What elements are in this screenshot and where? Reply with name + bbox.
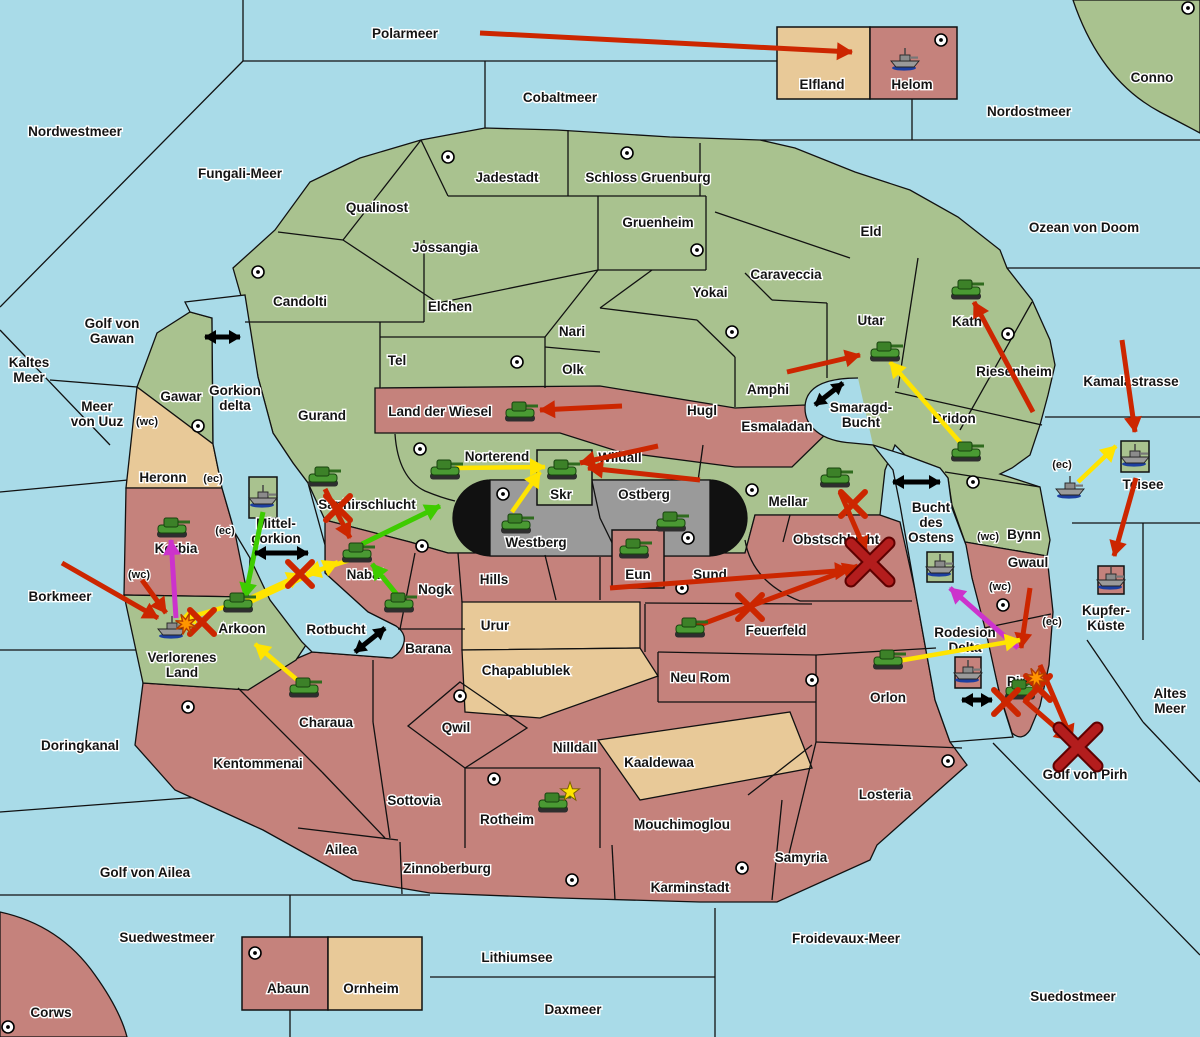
- label-kaaldewaa: Kaaldewaa: [624, 755, 694, 770]
- svg-text:Esmaladan: Esmaladan: [741, 419, 812, 434]
- svg-text:Suedostmeer: Suedostmeer: [1030, 989, 1116, 1004]
- label-samyria: Samyria: [775, 850, 828, 865]
- svg-text:Skr: Skr: [550, 487, 573, 502]
- label-urur: Urur: [481, 618, 510, 633]
- game-map-stage: NordwestmeerPolarmeerCobaltmeerFungali-M…: [0, 0, 1200, 1037]
- label-arkoon: Arkoon: [218, 621, 265, 636]
- label-heronn: Heronn: [139, 470, 186, 485]
- label-suedwestmeer: Suedwestmeer: [119, 930, 215, 945]
- label-hills: Hills: [480, 572, 509, 587]
- label-kentommenai: Kentommenai: [213, 756, 302, 771]
- label-tel: Tel: [388, 353, 407, 368]
- svg-text:Daxmeer: Daxmeer: [544, 1002, 602, 1017]
- label-kaltes-meer: KaltesMeer: [9, 355, 50, 385]
- svg-text:Qualinost: Qualinost: [346, 200, 409, 215]
- svg-text:Norterend: Norterend: [465, 449, 530, 464]
- svg-text:Helom: Helom: [891, 77, 932, 92]
- label-abaun: Abaun: [267, 981, 309, 996]
- svg-text:Arkoon: Arkoon: [218, 621, 265, 636]
- svg-text:Kaaldewaa: Kaaldewaa: [624, 755, 694, 770]
- supply-center-dot: [497, 488, 509, 500]
- region-ornheim[interactable]: [328, 937, 422, 1010]
- label-schloss-gruenburg: Schloss Gruenburg: [585, 170, 710, 185]
- svg-text:(ec): (ec): [1042, 616, 1062, 628]
- svg-text:Losteria: Losteria: [859, 787, 912, 802]
- label-losteria: Losteria: [859, 787, 912, 802]
- svg-text:Caraveccia: Caraveccia: [750, 267, 822, 282]
- label-ostberg: Ostberg: [618, 487, 670, 502]
- supply-center-dot: [192, 420, 204, 432]
- coast-ec-gwaul: (ec): [1042, 616, 1062, 628]
- coast-wc-gwaul: (wc): [989, 581, 1011, 593]
- svg-text:Polarmeer: Polarmeer: [372, 26, 439, 41]
- label-charaua: Charaua: [299, 715, 354, 730]
- svg-text:Utar: Utar: [857, 313, 885, 328]
- label-nogk: Nogk: [418, 582, 452, 597]
- label-golf-von-gawan: Golf vonGawan: [85, 316, 140, 346]
- svg-text:Sottovia: Sottovia: [387, 793, 441, 808]
- label-cobaltmeer: Cobaltmeer: [523, 90, 598, 105]
- svg-text:Samyria: Samyria: [775, 850, 828, 865]
- svg-text:(wc): (wc): [977, 531, 999, 543]
- supply-center-dot: [942, 755, 954, 767]
- svg-text:Mouchimoglou: Mouchimoglou: [634, 817, 730, 832]
- label-elfland: Elfland: [799, 77, 844, 92]
- label-mouchimoglou: Mouchimoglou: [634, 817, 730, 832]
- label-norterend: Norterend: [465, 449, 530, 464]
- label-gurand: Gurand: [298, 408, 346, 423]
- label-doringkanal: Doringkanal: [41, 738, 119, 753]
- coast-ec-heronn: (ec): [203, 473, 223, 485]
- svg-text:Golf vonGawan: Golf vonGawan: [85, 316, 140, 346]
- label-bynn: Bynn: [1007, 527, 1041, 542]
- supply-center-dot: [691, 244, 703, 256]
- label-neu-rom: Neu Rom: [670, 670, 729, 685]
- svg-text:Gurand: Gurand: [298, 408, 346, 423]
- svg-text:Qwil: Qwil: [442, 720, 471, 735]
- label-olk: Olk: [562, 362, 584, 377]
- svg-text:Nordostmeer: Nordostmeer: [987, 104, 1072, 119]
- label-chapablublek: Chapablublek: [482, 663, 571, 678]
- label-borkmeer: Borkmeer: [28, 589, 92, 604]
- svg-text:Schloss Gruenburg: Schloss Gruenburg: [585, 170, 710, 185]
- svg-text:Candolti: Candolti: [273, 294, 327, 309]
- svg-text:Westberg: Westberg: [505, 535, 566, 550]
- svg-text:Jossangia: Jossangia: [412, 240, 479, 255]
- label-daxmeer: Daxmeer: [544, 1002, 602, 1017]
- svg-text:Suedwestmeer: Suedwestmeer: [119, 930, 215, 945]
- label-land-der-wiesel: Land der Wiesel: [388, 404, 491, 419]
- svg-text:Nilldall: Nilldall: [553, 740, 597, 755]
- label-gwaul: Gwaul: [1008, 555, 1049, 570]
- svg-text:Lithiumsee: Lithiumsee: [481, 950, 553, 965]
- svg-text:Karminstadt: Karminstadt: [651, 880, 730, 895]
- svg-text:(ec): (ec): [203, 473, 223, 485]
- svg-text:KaltesMeer: KaltesMeer: [9, 355, 50, 385]
- svg-text:Barana: Barana: [405, 641, 451, 656]
- svg-text:Olk: Olk: [562, 362, 584, 377]
- svg-text:Ornheim: Ornheim: [343, 981, 399, 996]
- label-ornheim: Ornheim: [343, 981, 399, 996]
- svg-text:Golf von Ailea: Golf von Ailea: [100, 865, 191, 880]
- label-nilldall: Nilldall: [553, 740, 597, 755]
- supply-center-dot: [736, 862, 748, 874]
- label-qwil: Qwil: [442, 720, 471, 735]
- coast-wc-bynn: (wc): [977, 531, 999, 543]
- label-altes-meer: AltesMeer: [1153, 686, 1186, 716]
- svg-text:Gawar: Gawar: [160, 389, 202, 404]
- svg-text:Corws: Corws: [30, 1005, 71, 1020]
- svg-text:Tel: Tel: [388, 353, 407, 368]
- svg-text:Bynn: Bynn: [1007, 527, 1041, 542]
- label-hugl: Hugl: [687, 403, 717, 418]
- svg-text:Eld: Eld: [860, 224, 881, 239]
- svg-text:(ec): (ec): [1052, 459, 1072, 471]
- svg-text:AltesMeer: AltesMeer: [1153, 686, 1186, 716]
- label-eun: Eun: [625, 567, 651, 582]
- svg-text:Rotheim: Rotheim: [480, 812, 534, 827]
- svg-text:Hugl: Hugl: [687, 403, 717, 418]
- supply-center-dot: [488, 773, 500, 785]
- coast-wc-gawar: (wc): [136, 416, 158, 428]
- supply-center-dot: [1182, 2, 1194, 14]
- svg-text:Orlon: Orlon: [870, 690, 906, 705]
- svg-text:Chapablublek: Chapablublek: [482, 663, 571, 678]
- label-golf-von-ailea: Golf von Ailea: [100, 865, 191, 880]
- label-westberg: Westberg: [505, 535, 566, 550]
- svg-text:Gwaul: Gwaul: [1008, 555, 1049, 570]
- svg-text:(ec): (ec): [215, 525, 235, 537]
- svg-text:Fungali-Meer: Fungali-Meer: [198, 166, 283, 181]
- supply-center-dot: [454, 690, 466, 702]
- svg-text:Amphi: Amphi: [747, 382, 789, 397]
- svg-text:Jadestadt: Jadestadt: [475, 170, 539, 185]
- svg-text:Nari: Nari: [559, 324, 585, 339]
- supply-center-dot: [252, 266, 264, 278]
- coast-ec-korbia: (ec): [215, 525, 235, 537]
- label-lithiumsee: Lithiumsee: [481, 950, 553, 965]
- svg-text:(wc): (wc): [128, 569, 150, 581]
- supply-center-dot: [806, 674, 818, 686]
- svg-text:Urur: Urur: [481, 618, 510, 633]
- label-suedostmeer: Suedostmeer: [1030, 989, 1116, 1004]
- label-candolti: Candolti: [273, 294, 327, 309]
- svg-text:(wc): (wc): [989, 581, 1011, 593]
- label-jadestadt: Jadestadt: [475, 170, 539, 185]
- supply-center-dot: [1002, 328, 1014, 340]
- coast-ec-bynn: (ec): [1052, 459, 1072, 471]
- label-corws: Corws: [30, 1005, 71, 1020]
- label-utar: Utar: [857, 313, 885, 328]
- label-rotbucht: Rotbucht: [306, 622, 366, 637]
- supply-center-dot: [746, 484, 758, 496]
- label-caraveccia: Caraveccia: [750, 267, 822, 282]
- label-yokai: Yokai: [692, 285, 727, 300]
- label-jossangia: Jossangia: [412, 240, 479, 255]
- svg-text:Kupfer-Küste: Kupfer-Küste: [1082, 603, 1130, 633]
- supply-center-dot: [511, 356, 523, 368]
- supply-center-dot: [726, 326, 738, 338]
- supply-center-dot: [621, 147, 633, 159]
- svg-text:(wc): (wc): [136, 416, 158, 428]
- label-mellar: Mellar: [768, 494, 808, 509]
- svg-text:Elfland: Elfland: [799, 77, 844, 92]
- label-nordwestmeer: Nordwestmeer: [28, 124, 123, 139]
- label-polarmeer: Polarmeer: [372, 26, 439, 41]
- svg-text:Zinnoberburg: Zinnoberburg: [403, 861, 491, 876]
- supply-center-dot: [997, 599, 1009, 611]
- supply-center-dot: [935, 34, 947, 46]
- label-qualinost: Qualinost: [346, 200, 409, 215]
- label-teisee: Teisee: [1122, 477, 1164, 492]
- svg-text:Hills: Hills: [480, 572, 509, 587]
- label-gruenheim: Gruenheim: [622, 215, 693, 230]
- svg-text:Ozean von Doom: Ozean von Doom: [1029, 220, 1139, 235]
- svg-text:Teisee: Teisee: [1122, 477, 1164, 492]
- svg-text:Neu Rom: Neu Rom: [670, 670, 729, 685]
- supply-center-dot: [566, 874, 578, 886]
- label-froidevaux-meer: Froidevaux-Meer: [792, 931, 901, 946]
- svg-text:Borkmeer: Borkmeer: [28, 589, 92, 604]
- svg-text:Abaun: Abaun: [267, 981, 309, 996]
- svg-text:Gruenheim: Gruenheim: [622, 215, 693, 230]
- supply-center-dot: [182, 701, 194, 713]
- svg-text:Kentommenai: Kentommenai: [213, 756, 302, 771]
- svg-text:Doringkanal: Doringkanal: [41, 738, 119, 753]
- label-helom: Helom: [891, 77, 932, 92]
- svg-text:Heronn: Heronn: [139, 470, 186, 485]
- label-conno: Conno: [1131, 70, 1174, 85]
- svg-text:Charaua: Charaua: [299, 715, 354, 730]
- label-amphi: Amphi: [747, 382, 789, 397]
- svg-text:Elchen: Elchen: [428, 299, 472, 314]
- svg-text:Ostberg: Ostberg: [618, 487, 670, 502]
- label-nari: Nari: [559, 324, 585, 339]
- supply-center-dot: [2, 1021, 14, 1033]
- label-gawar: Gawar: [160, 389, 202, 404]
- supply-center-dot: [416, 540, 428, 552]
- svg-text:Eun: Eun: [625, 567, 651, 582]
- label-feuerfeld: Feuerfeld: [746, 623, 807, 638]
- label-ailea: Ailea: [325, 842, 358, 857]
- svg-text:Yokai: Yokai: [692, 285, 727, 300]
- supply-center-dot: [442, 151, 454, 163]
- svg-text:Nogk: Nogk: [418, 582, 452, 597]
- label-kupfer-kueste: Kupfer-Küste: [1082, 603, 1130, 633]
- svg-text:Conno: Conno: [1131, 70, 1174, 85]
- svg-text:Ailea: Ailea: [325, 842, 358, 857]
- svg-text:Land der Wiesel: Land der Wiesel: [388, 404, 491, 419]
- coast-wc-korbia: (wc): [128, 569, 150, 581]
- supply-center-dot: [682, 532, 694, 544]
- svg-text:Nordwestmeer: Nordwestmeer: [28, 124, 123, 139]
- supply-center-dot: [249, 947, 261, 959]
- supply-center-dot: [414, 443, 426, 455]
- label-ozean-von-doom: Ozean von Doom: [1029, 220, 1139, 235]
- svg-text:Feuerfeld: Feuerfeld: [746, 623, 807, 638]
- label-barana: Barana: [405, 641, 451, 656]
- label-eld: Eld: [860, 224, 881, 239]
- label-karminstadt: Karminstadt: [651, 880, 730, 895]
- supply-center-dot: [967, 476, 979, 488]
- svg-text:Kamalastrasse: Kamalastrasse: [1083, 374, 1179, 389]
- label-nordostmeer: Nordostmeer: [987, 104, 1072, 119]
- svg-text:Froidevaux-Meer: Froidevaux-Meer: [792, 931, 901, 946]
- label-fungali-meer: Fungali-Meer: [198, 166, 283, 181]
- label-esmaladan: Esmaladan: [741, 419, 812, 434]
- label-orlon: Orlon: [870, 690, 906, 705]
- label-elchen: Elchen: [428, 299, 472, 314]
- svg-text:Rotbucht: Rotbucht: [306, 622, 366, 637]
- svg-text:Mellar: Mellar: [768, 494, 808, 509]
- label-kamalastrasse: Kamalastrasse: [1083, 374, 1179, 389]
- label-rotheim: Rotheim: [480, 812, 534, 827]
- label-skr: Skr: [550, 487, 573, 502]
- svg-text:Cobaltmeer: Cobaltmeer: [523, 90, 598, 105]
- label-sottovia: Sottovia: [387, 793, 441, 808]
- label-zinnoberburg: Zinnoberburg: [403, 861, 491, 876]
- strategy-map[interactable]: NordwestmeerPolarmeerCobaltmeerFungali-M…: [0, 0, 1200, 1037]
